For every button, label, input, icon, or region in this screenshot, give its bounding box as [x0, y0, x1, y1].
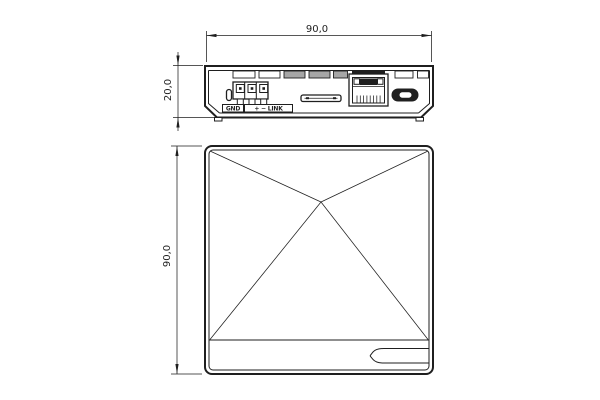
vent-slot: [233, 71, 255, 78]
card-slot-icon: [301, 95, 341, 102]
vent-slot: [284, 71, 305, 78]
link-label: + − LINK: [254, 106, 283, 113]
left-foot: [215, 118, 223, 122]
gnd-label: GND: [226, 106, 241, 113]
arrowhead-top: [175, 146, 178, 156]
vent-slot: [334, 71, 348, 78]
vent-slot: [395, 71, 413, 78]
vent-slot: [259, 71, 280, 78]
vent-slot: [309, 71, 330, 78]
front-face-view: [205, 146, 433, 374]
arrowhead-bottom: [175, 364, 178, 374]
rear-width-dimension: 90,0: [207, 24, 432, 62]
arrowhead-left: [207, 34, 217, 37]
right-foot: [416, 118, 424, 122]
rear-width-dim-text: 90,0: [306, 24, 328, 35]
terminal-labels: GND + − LINK: [223, 105, 293, 113]
extension-lines: [171, 146, 202, 374]
rear-height-dim-text: 20,0: [163, 79, 174, 101]
arrowhead-top: [176, 56, 179, 66]
front-height-dim-text: 90,0: [162, 245, 173, 267]
arrowhead-right: [422, 34, 432, 37]
front-height-dimension: 90,0: [162, 146, 202, 374]
micro-usb-icon: [392, 89, 419, 102]
terminal-block-icon: [233, 82, 268, 105]
vent-slot: [418, 71, 429, 78]
technical-drawing: GND + − LINK: [0, 0, 600, 400]
oval-slot-icon: [227, 90, 232, 101]
arrowhead-bottom: [176, 118, 179, 128]
rj45-ethernet-icon: [349, 71, 388, 106]
rear-panel-view: GND + − LINK: [205, 66, 433, 121]
